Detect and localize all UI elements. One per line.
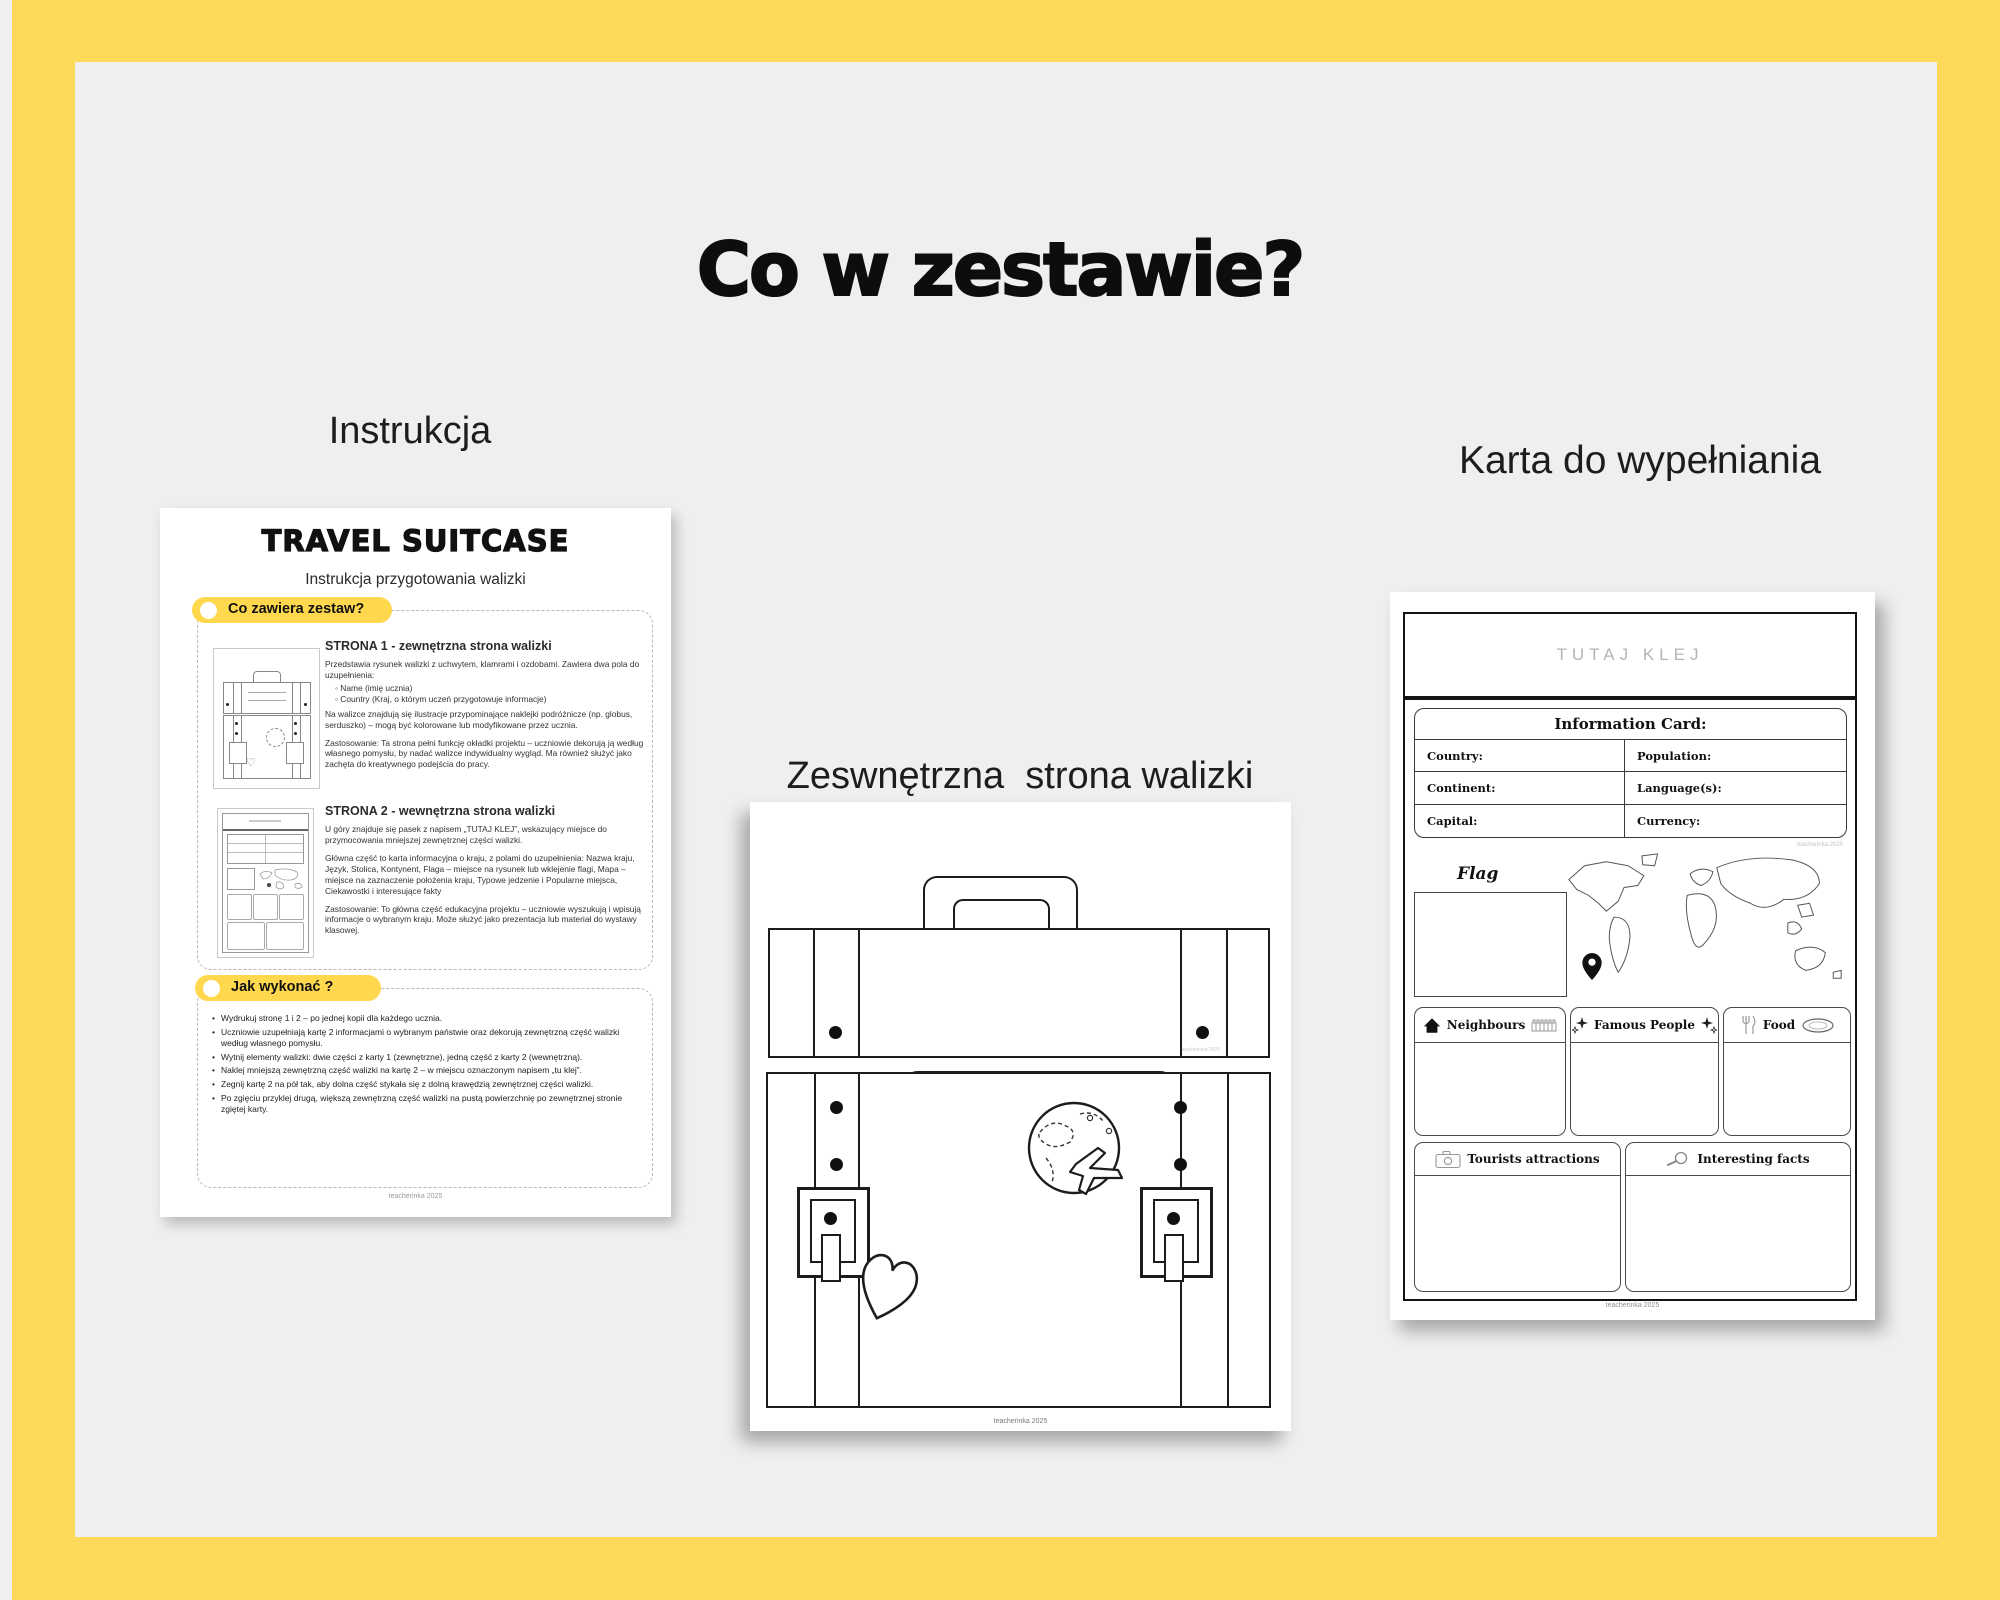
famous-people-label: Famous People [1594,1018,1695,1032]
field-languages: Language(s): [1624,772,1846,804]
rivet-dot [829,1026,842,1039]
mini-rivet [294,732,297,735]
strap-line [858,930,860,1056]
strona2-heading: STRONA 2 - wewnętrzna strona walizki [325,804,651,818]
how-step: Po zgięciu przyklej drugą, większą zewnę… [212,1093,624,1115]
field-capital: Capital: [1415,805,1624,837]
instruction-footer: teacherinka 2025 [160,1193,671,1200]
info-card-page: TUTAJ KLEJ Information Card: Country: Po… [1390,592,1875,1320]
strona2-paragraph: Zastosowanie: To główna część edukacyjna… [325,904,651,937]
mini-map [257,866,304,892]
rivet-dot [1174,1101,1187,1114]
suitcase-body [766,1072,1271,1408]
interesting-facts-box: Interesting facts [1625,1142,1851,1292]
famous-people-header: Famous People [1571,1008,1718,1043]
strap-line [813,930,815,1056]
mini-line [300,683,301,713]
strona1-bullet: Country (Kraj, o którym uczeń przygotowu… [335,694,651,705]
how-step: Uczniowie uzupełniają kartę 2 informacja… [212,1027,624,1049]
rivet-dot [830,1158,843,1171]
pill-jak-wykonac: Jak wykonać ? [195,975,381,1001]
strona1-paragraph: Na walizce znajdują się ilustracje przyp… [325,709,651,731]
strap-line [1180,930,1182,1056]
fence-icon [1531,1017,1557,1033]
strona2-paragraph: Główna część to karta informacyjna o kra… [325,853,651,897]
flag-box [1414,892,1567,997]
caption-instrukcja: Instrukcja [210,410,610,453]
mini-rivet [235,732,238,735]
strona1-paragraph: Przedstawia rysunek walizki z uchwytem, … [325,659,651,681]
strap-line [1226,930,1228,1056]
tourist-attractions-label: Tourists attractions [1467,1152,1599,1166]
pill-dot-icon [200,602,217,619]
mini-glue-band [223,814,308,831]
strona1-bullets: Name (imię ucznia) Country (Kraj, o któr… [335,683,651,705]
mini-rivet [294,722,297,725]
mini-box [227,894,252,920]
field-population: Population: [1624,740,1846,772]
rivet-dot [1196,1026,1209,1039]
mini-line [265,835,266,863]
strona1-bullet: Name (imię ucznia) [335,683,651,694]
pill-label: Jak wykonać ? [231,979,333,995]
suitcase-footer: teacherinka 2025 [750,1418,1291,1425]
flag-label: Flag [1457,864,1498,884]
mini-text-line [248,692,286,693]
how-step: Zegnij kartę 2 na pół tak, aby dolna czę… [212,1079,624,1090]
caption-line: Karta do wypełniania [1390,430,1890,491]
tourist-attractions-header: Tourists attractions [1415,1143,1620,1176]
how-list: Wydrukuj stronę 1 i 2 – po jednej kopii … [212,1013,624,1118]
mini-rivet [235,722,238,725]
mini-card-preview [217,808,314,958]
mini-lid [223,682,311,714]
how-step: Wytnij elementy walizki: dwie części z k… [212,1052,624,1063]
interesting-facts-header: Interesting facts [1626,1143,1850,1176]
mini-heart: ♡ [246,756,256,769]
lid-watermark: teacherinka 2025 [1182,1047,1220,1053]
mini-line [233,683,234,713]
strap-line [1227,1074,1229,1406]
information-card-table: Information Card: Country: Population: C… [1414,708,1847,838]
neighbours-box: Neighbours [1414,1007,1566,1136]
mini-line [241,683,242,713]
mini-line [292,683,293,713]
mini-body: ♡ [223,715,311,779]
glue-strip: TUTAJ KLEJ [1405,614,1855,700]
mini-rivet [304,703,307,706]
house-icon [1423,1017,1441,1034]
rivet-dot [1174,1158,1187,1171]
mini-box [253,894,278,920]
food-label: Food [1763,1018,1795,1032]
card-frame: TUTAJ KLEJ Information Card: Country: Po… [1403,612,1857,1301]
suitcase-page: Name: _ _ _ _ _ _ _ _ _ _ Country: _ _ _… [750,802,1291,1431]
suitcase-lid: Name: _ _ _ _ _ _ _ _ _ _ Country: _ _ _… [768,928,1270,1058]
pill-label: Co zawiera zestaw? [228,601,364,617]
tourist-attractions-box: Tourists attractions [1414,1142,1621,1292]
mini-box [266,922,304,950]
mini-glue-text [249,820,281,822]
mini-text-line [248,700,286,701]
info-card-footer: teacherinka 2025 [1390,1302,1875,1309]
neighbours-label: Neighbours [1447,1018,1525,1032]
neighbours-header: Neighbours [1415,1008,1565,1043]
caption-line: Zeswnętrzna strona walizki [730,748,1310,804]
mini-flag-box [227,868,255,890]
strona2-paragraph: U góry znajduje się pasek z napisem „TUT… [325,824,651,846]
how-step: Naklej mniejszą zewnętrzną część walizki… [212,1065,624,1076]
map-pin-icon [1581,952,1603,981]
field-continent: Continent: [1415,772,1624,804]
globe-airplane-icon [1026,1098,1130,1206]
mini-card-frame [222,813,309,953]
information-card-title: Information Card: [1415,709,1846,740]
camera-icon [1435,1150,1461,1169]
how-step: Wydrukuj stronę 1 i 2 – po jednej kopii … [212,1013,624,1024]
mini-box [227,922,265,950]
mini-buckle [229,742,247,764]
strona1-heading: STRONA 1 - zewnętrzna strona walizki [325,639,651,653]
famous-people-box: Famous People [1570,1007,1719,1136]
sparkles-icon [1701,1015,1717,1035]
sparkles-icon [1572,1015,1588,1035]
left-edge-sliver [0,0,12,1600]
section-strona1: STRONA 1 - zewnętrzna strona walizki Prz… [325,639,651,777]
instruction-subtitle: Instrukcja przygotowania walizki [160,571,671,589]
mini-suitcase-preview: ♡ [213,648,320,789]
mini-box [279,894,304,920]
page-title: Co w zestawie? [400,228,1600,312]
instruction-title: TRAVEL SUITCASE [160,524,671,558]
mini-table [227,834,304,864]
strona1-paragraph: Zastosowanie: Ta strona pełni funkcję ok… [325,738,651,771]
section-strona2: STRONA 2 - wewnętrzna strona walizki U g… [325,804,651,943]
buckle-left-tongue [821,1234,841,1282]
poster-canvas: Co w zestawie? Instrukcja Karta do wypeł… [0,0,2000,1600]
pill-co-zawiera: Co zawiera zestaw? [192,597,392,623]
instruction-page: TRAVEL SUITCASE Instrukcja przygotowania… [160,508,671,1217]
field-currency: Currency: [1624,805,1846,837]
rivet-dot [1167,1212,1180,1225]
information-card-grid: Country: Population: Continent: Language… [1415,740,1846,837]
cutlery-icon [1739,1014,1757,1036]
food-header: Food [1724,1008,1850,1043]
mini-buckle [286,742,304,764]
rivet-dot [824,1212,837,1225]
field-country: Country: [1415,740,1624,772]
rivet-dot [830,1101,843,1114]
pill-dot-icon [203,980,220,997]
mini-rivet [226,703,229,706]
food-box: Food [1723,1007,1851,1136]
plate-icon [1801,1018,1835,1033]
magnifier-icon [1666,1151,1691,1167]
buckle-right-tongue [1164,1234,1184,1282]
mini-globe [266,728,285,747]
interesting-facts-label: Interesting facts [1697,1152,1809,1166]
